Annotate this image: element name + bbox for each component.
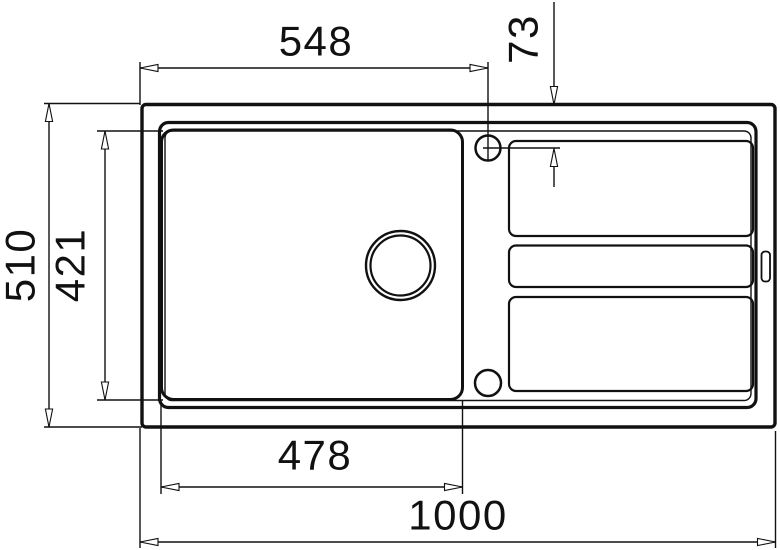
arrowhead-right [470,64,488,71]
arrowhead-right [445,483,463,490]
arrowhead-left [161,483,179,490]
arrowhead-up [550,149,557,167]
dimension-548-label: 548 [279,18,354,65]
dimension-510-label: 510 [0,228,44,303]
sink-rim-inner-edge [160,123,757,408]
arrowhead-right [758,538,776,545]
sink-outer-edge [142,105,775,428]
arrowhead-up [45,104,52,122]
arrowhead-up [101,131,108,149]
sink-body [142,105,775,428]
arrowhead-left [140,538,158,545]
dimension-73-label: 73 [500,14,547,64]
arrowhead-down [45,409,52,427]
drainboard-panel-top [509,141,753,236]
dimension-478: 478 [161,400,463,494]
dimension-548: 548 [140,18,488,161]
tap-holes [475,136,501,397]
dimension-478-label: 478 [278,432,353,479]
dimension-1000-label: 1000 [408,492,507,539]
drainboard-panel-middle [509,246,753,288]
arrowhead-down [550,87,557,105]
bowl-edge [162,130,463,400]
sink-rim-fillet-line [165,131,751,401]
arrowhead-down [101,382,108,400]
drain-outer-circle [366,231,435,300]
dimension-421-label: 421 [47,228,94,303]
bowl [162,130,463,400]
drain-inner-circle [371,236,431,296]
drainboard [509,141,770,391]
drainboard-panel-bottom [509,297,753,391]
drawing-canvas: 548 73 510 421 [0,0,780,550]
sink-technical-drawing: 548 73 510 421 [0,0,780,550]
tap-hole-bottom [475,370,501,396]
arrowhead-left [140,64,158,71]
dimension-421: 421 [47,131,163,400]
overflow-notch [762,252,771,282]
